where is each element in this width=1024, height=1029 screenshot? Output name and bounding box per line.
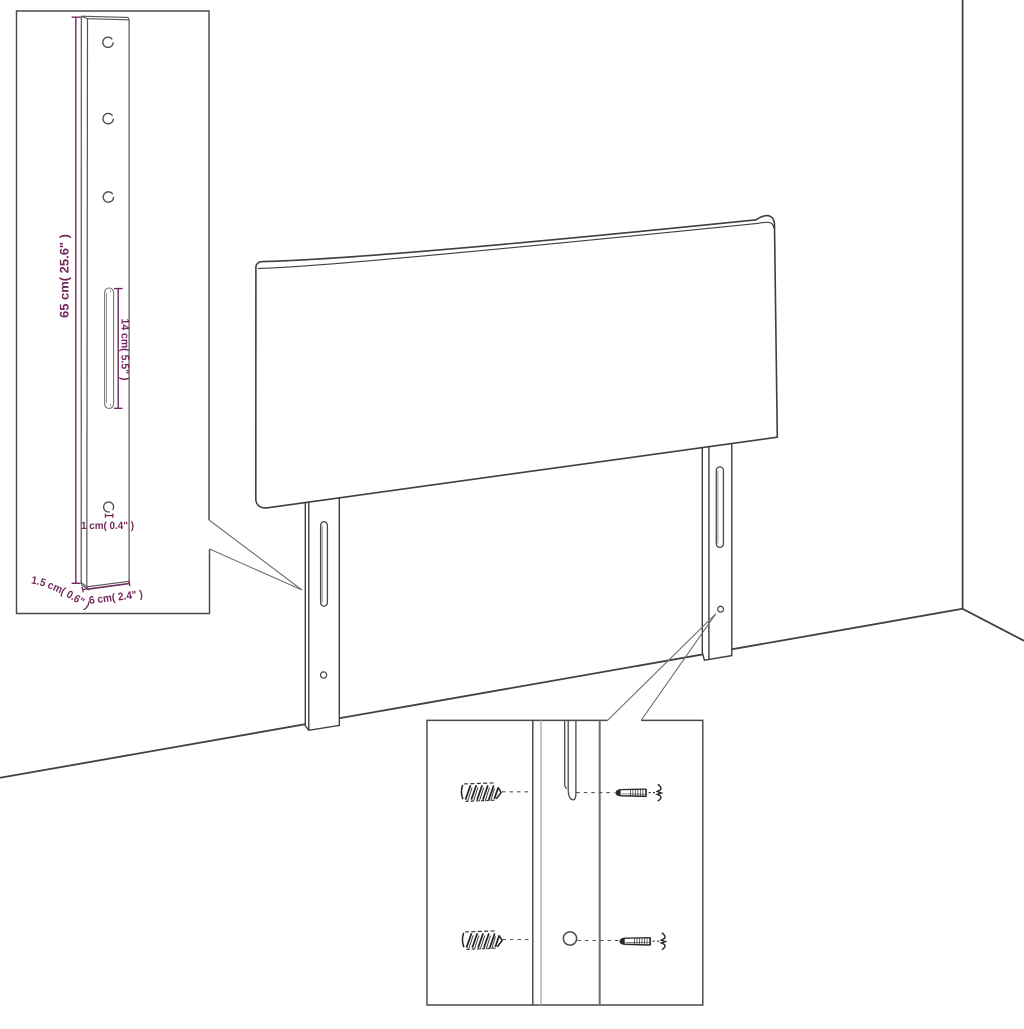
svg-text:14 cm( 5.5" ): 14 cm( 5.5" ) <box>118 319 130 381</box>
svg-text:65 cm( 25.6" ): 65 cm( 25.6" ) <box>57 234 71 318</box>
svg-text:1 cm( 0.4" ): 1 cm( 0.4" ) <box>81 520 134 532</box>
